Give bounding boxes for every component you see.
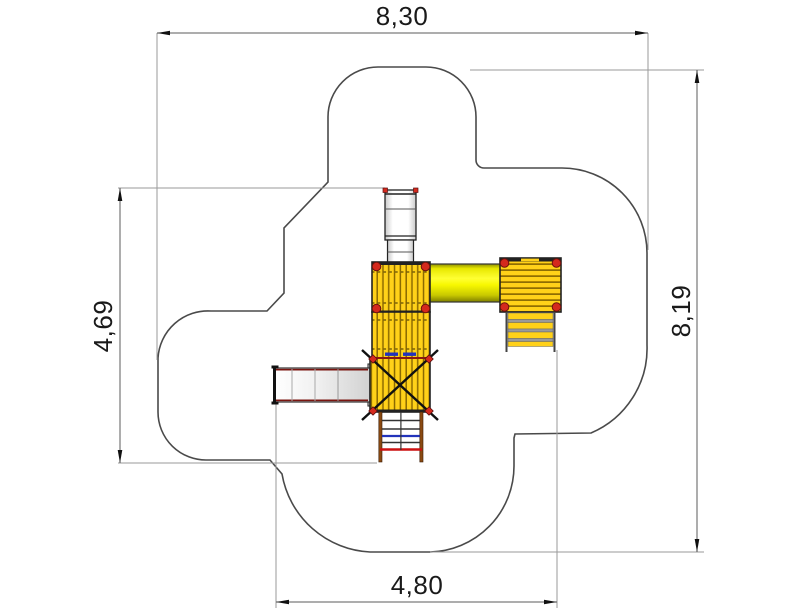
slide-corner-post <box>383 188 388 193</box>
roof-platform <box>362 350 438 420</box>
side-slide <box>272 364 380 406</box>
arrow-down <box>118 450 123 463</box>
arrow-left <box>157 31 170 36</box>
dimension-bottom-width: 4,80 <box>276 570 557 604</box>
stairs <box>506 312 556 352</box>
lower-platform <box>372 312 430 358</box>
dimension-label-left: 4,69 <box>88 300 118 353</box>
arrow-right <box>544 600 557 605</box>
main-tower-platform <box>372 262 430 312</box>
dimension-label-top: 8,30 <box>376 1 429 31</box>
plan-drawing: 8,30 8,19 4,69 4,80 <box>0 0 800 615</box>
arrow-down <box>695 539 700 552</box>
arrow-right <box>635 31 648 36</box>
arrow-up <box>695 70 700 83</box>
arrow-up <box>118 188 123 201</box>
slide-edge <box>276 369 368 371</box>
entry-bar <box>403 353 416 356</box>
top-slide <box>383 188 418 268</box>
slide-corner-post <box>414 188 419 193</box>
dimension-label-right: 8,19 <box>666 285 696 338</box>
plan-canvas: 8,30 8,19 4,69 4,80 <box>0 0 800 615</box>
right-platform <box>500 258 561 312</box>
entry-bar <box>385 353 398 356</box>
dimension-right-height: 8,19 <box>666 70 699 552</box>
dimension-label-bottom: 4,80 <box>391 570 444 600</box>
dimension-left-height: 4,69 <box>88 188 122 463</box>
arrow-left <box>276 600 289 605</box>
slide-edge <box>276 400 368 402</box>
crawl-tube <box>429 264 501 302</box>
dimension-top-width: 8,30 <box>157 1 648 35</box>
